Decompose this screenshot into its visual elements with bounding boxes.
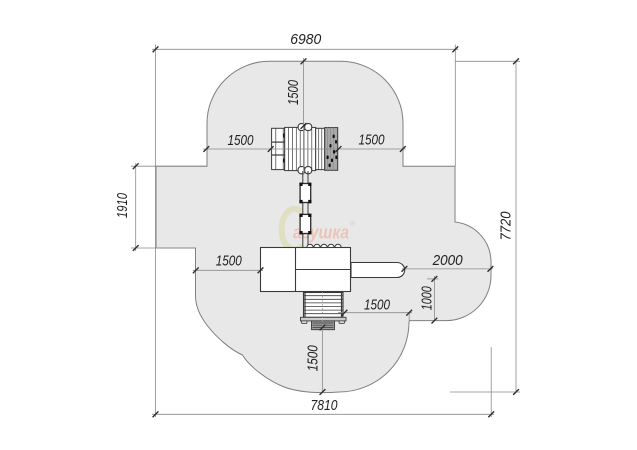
- svg-text:1500: 1500: [216, 252, 243, 269]
- svg-text:1500: 1500: [305, 345, 322, 372]
- svg-text:1910: 1910: [114, 193, 131, 218]
- svg-text:2000: 2000: [432, 252, 463, 269]
- svg-text:6980: 6980: [290, 31, 322, 48]
- svg-text:1500: 1500: [359, 132, 386, 149]
- svg-text:1500: 1500: [285, 80, 302, 105]
- svg-text:7810: 7810: [311, 397, 339, 414]
- svg-text:1500: 1500: [228, 132, 255, 149]
- svg-text:1500: 1500: [364, 296, 391, 313]
- svg-text:®: ®: [350, 220, 356, 228]
- svg-text:1000: 1000: [419, 286, 436, 310]
- svg-text:7720: 7720: [498, 211, 515, 241]
